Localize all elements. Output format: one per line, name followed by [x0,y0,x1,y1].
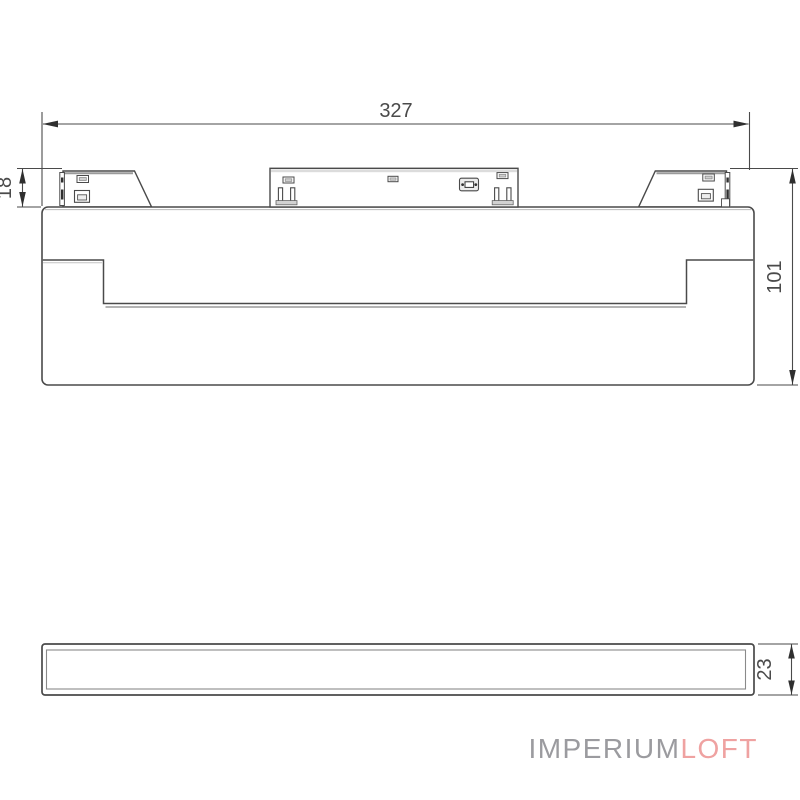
contact-pin [726,178,728,183]
arrow-up-icon [789,169,796,184]
technical-drawing-page: 327 18 101 [0,0,800,800]
driver-box-top-band [271,169,517,172]
arrow-up-icon [19,169,26,184]
arrow-right-icon [734,121,750,128]
front-view [42,168,754,385]
contact-pin [61,178,63,183]
vent-slot-inner [499,174,506,177]
left-connector-contact-bar [60,173,65,206]
contact-pin [61,190,63,200]
fixture-body [42,207,754,385]
driver-box [270,168,518,207]
arrow-down-icon [19,192,26,207]
arrow-down-icon [788,681,795,695]
profile-outline [42,644,754,695]
brand-logo-primary: IMPERIUM [528,733,680,764]
brand-logo: IMPERIUMLOFT [528,735,758,763]
dimension-connector-height [17,169,62,208]
arrow-left-icon [43,121,59,128]
vent-slot-inner [390,178,396,180]
right-track-connector [639,171,730,207]
connector-latch-inner [701,194,710,199]
vent-slot-inner [285,179,292,182]
contact-pin [726,190,728,200]
power-socket-icon [460,178,479,191]
side-profile-view [42,644,754,695]
connector-slot-inner [79,178,86,181]
fixture-dimension-drawing: 327 18 101 [0,0,800,800]
connector-foot [722,199,730,207]
connector-slot-inner [705,176,712,179]
driver-box-outline [270,168,518,207]
brand-logo-secondary: LOFT [680,733,758,764]
arrow-down-icon [789,370,796,385]
arrow-up-icon [788,645,795,659]
left-track-connector [60,171,152,207]
dimension-connector-height-label: 18 [0,177,16,199]
connector-latch-inner [78,195,87,200]
dimension-profile-height-label: 23 [754,658,776,680]
dimension-width-label: 327 [379,100,412,122]
dimension-total-height-label: 101 [764,260,786,293]
